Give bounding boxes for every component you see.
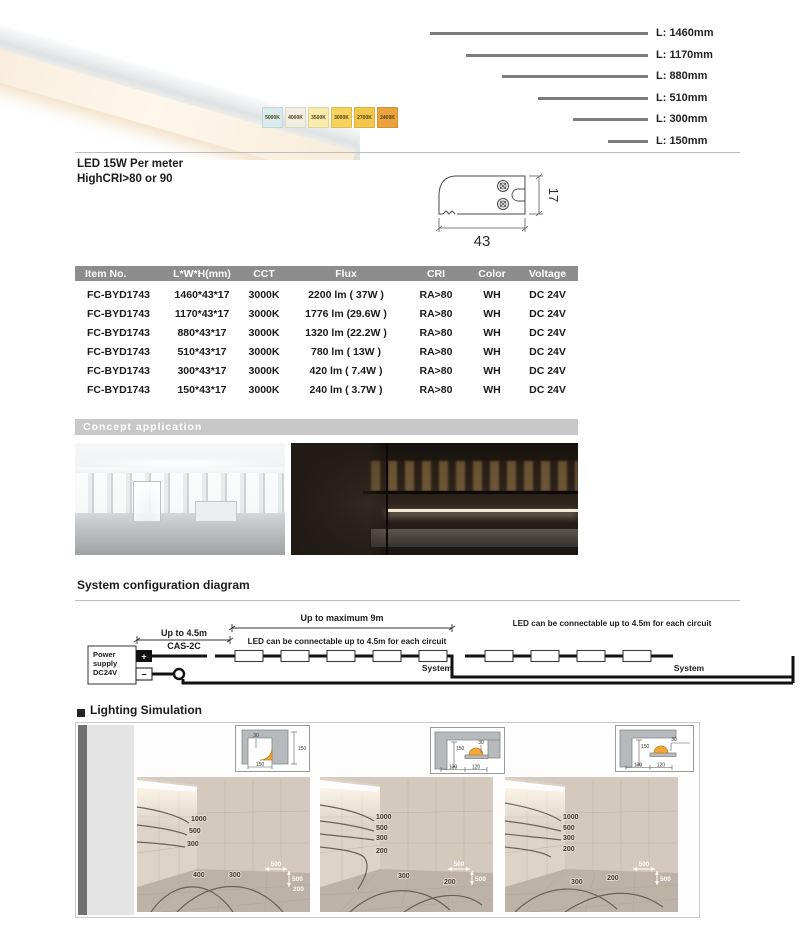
svg-text:200: 200 xyxy=(607,875,619,882)
cell-cri: RA>80 xyxy=(405,285,467,304)
cell-flux: 240 lm ( 3.7W ) xyxy=(287,380,405,399)
cell-flux: 2200 lm ( 37W ) xyxy=(287,285,405,304)
shelf-edge xyxy=(363,491,578,494)
length-row: L: 1460mm xyxy=(0,27,800,41)
cell-color: WH xyxy=(467,323,517,342)
ps-line3: DC24V xyxy=(93,668,117,677)
col-header: Flux xyxy=(287,266,405,281)
col-header: Item No. xyxy=(75,266,163,281)
length-label: L: 1460mm xyxy=(656,27,713,39)
divider-line xyxy=(75,152,740,153)
simulation-room-2: 1000 500 300 200 300 200 500 500 xyxy=(320,777,493,912)
lighting-simulation-title: Lighting Simulation xyxy=(90,703,202,717)
application-photo-kitchen xyxy=(291,443,578,555)
cove-detail-1-svg: 30 150 150 xyxy=(236,726,309,771)
cell-color: WH xyxy=(467,342,517,361)
svg-text:1000: 1000 xyxy=(191,816,207,823)
cell-voltage: DC 24V xyxy=(517,380,578,399)
cable-label: CAS-2C xyxy=(167,641,201,651)
table-row: FC-BYD1743 1460*43*17 3000K 2200 lm ( 37… xyxy=(75,285,578,304)
svg-text:300: 300 xyxy=(563,835,575,842)
col-header: L*W*H(mm) xyxy=(163,266,241,281)
svg-text:200: 200 xyxy=(444,879,456,886)
height-dim-label: 17 xyxy=(546,188,561,202)
store-floor xyxy=(75,521,285,555)
svg-text:500: 500 xyxy=(639,861,650,868)
profile-outline xyxy=(439,176,525,214)
svg-text:200: 200 xyxy=(293,886,304,893)
datasheet-page: 5000K 4000K 3500K 3000K 2700K 2400K L: 1… xyxy=(0,0,800,930)
cell-item: FC-BYD1743 xyxy=(75,380,163,399)
system-config-title: System configuration diagram xyxy=(77,578,250,592)
cell-voltage: DC 24V xyxy=(517,361,578,380)
cell-voltage: DC 24V xyxy=(517,304,578,323)
inset1-dim-150b: 150 xyxy=(256,762,265,768)
length-bar xyxy=(538,97,648,100)
kitchen-counter xyxy=(371,529,578,547)
under-cabinet-light xyxy=(386,509,578,512)
inset2-dim-150: 150 xyxy=(456,746,465,752)
panel-dark-strip xyxy=(78,725,87,915)
table-row: FC-BYD1743 150*43*17 3000K 240 lm ( 3.7W… xyxy=(75,380,578,399)
cell-cri: RA>80 xyxy=(405,342,467,361)
plus-label: + xyxy=(141,652,146,662)
minus-label: − xyxy=(141,670,146,680)
cell-item: FC-BYD1743 xyxy=(75,342,163,361)
table-row: FC-BYD1743 880*43*17 3000K 1320 lm (22.2… xyxy=(75,323,578,342)
cell-size: 150*43*17 xyxy=(163,380,241,399)
cove-detail-1: 30 150 150 xyxy=(235,725,310,772)
circuit2-label: LED can be connectable up to 4.5m for ea… xyxy=(513,619,712,628)
svg-text:500: 500 xyxy=(660,876,671,883)
cell-flux: 1320 lm (22.2W ) xyxy=(287,323,405,342)
table-header-row: Item No. L*W*H(mm) CCT Flux CRI Color Vo… xyxy=(75,266,578,281)
cell-cri: RA>80 xyxy=(405,361,467,380)
bottle-shelf xyxy=(371,461,578,491)
system2-label: System xyxy=(674,663,705,673)
cove-glow-fade xyxy=(137,788,197,825)
inset3-dim-150: 150 xyxy=(641,744,650,750)
length-row: L: 300mm xyxy=(0,113,800,127)
inset2-dim-30: 30 xyxy=(478,740,484,746)
svg-text:300: 300 xyxy=(571,879,583,886)
col-header: CRI xyxy=(405,266,467,281)
cell-color: WH xyxy=(467,380,517,399)
inset1-dim-150r: 150 xyxy=(298,746,307,752)
svg-text:500: 500 xyxy=(475,876,486,883)
cell-flux: 780 lm ( 13W ) xyxy=(287,342,405,361)
length-bar xyxy=(430,32,648,35)
cell-cct: 3000K xyxy=(241,342,287,361)
cell-cct: 3000K xyxy=(241,304,287,323)
cell-cri: RA>80 xyxy=(405,380,467,399)
width-dim-label: 43 xyxy=(474,233,491,250)
col-header: Color xyxy=(467,266,517,281)
length-label: L: 300mm xyxy=(656,113,707,125)
table-row: FC-BYD1743 510*43*17 3000K 780 lm ( 13W … xyxy=(75,342,578,361)
table-row: FC-BYD1743 300*43*17 3000K 420 lm ( 7.4W… xyxy=(75,361,578,380)
sliding-door xyxy=(291,443,388,555)
cell-flux: 1776 lm (29.6W ) xyxy=(287,304,405,323)
svg-text:300: 300 xyxy=(398,873,410,880)
cell-flux: 420 lm ( 7.4W ) xyxy=(287,361,405,380)
cell-item: FC-BYD1743 xyxy=(75,304,163,323)
inset2-dim-130: 130 xyxy=(449,765,458,771)
table-row: FC-BYD1743 1170*43*17 3000K 1776 lm (29.… xyxy=(75,304,578,323)
cri-spec: HighCRI>80 or 90 xyxy=(77,172,183,187)
cove-glow-fade xyxy=(505,788,565,825)
panel-light-strip xyxy=(87,725,134,915)
inset3-dim-120: 120 xyxy=(657,763,666,769)
cell-voltage: DC 24V xyxy=(517,342,578,361)
section-bullet xyxy=(77,709,85,717)
length-label: L: 510mm xyxy=(656,92,707,104)
svg-text:400: 400 xyxy=(193,872,205,879)
inset3-dim-130: 130 xyxy=(634,763,643,769)
concept-application-banner: Concept application xyxy=(75,419,578,435)
cross-section-diagram: 17 43 xyxy=(425,170,575,260)
cell-voltage: DC 24V xyxy=(517,285,578,304)
dim-9m-label: Up to maximum 9m xyxy=(300,613,383,623)
cell-cct: 3000K xyxy=(241,361,287,380)
led-modules xyxy=(235,651,651,662)
cell-size: 510*43*17 xyxy=(163,342,241,361)
simulation-room-1: 1000 500 300 400 300 500 500 200 xyxy=(137,777,310,912)
svg-text:500: 500 xyxy=(454,861,465,868)
wire-loop xyxy=(174,669,184,679)
length-bar xyxy=(466,54,648,57)
length-bar xyxy=(608,140,648,143)
cell-size: 300*43*17 xyxy=(163,361,241,380)
length-row: L: 150mm xyxy=(0,135,800,149)
svg-text:200: 200 xyxy=(563,846,575,853)
dim-9m-lines xyxy=(229,624,455,632)
circuit1-label: LED can be connectable up to 4.5m for ea… xyxy=(248,637,447,646)
svg-text:300: 300 xyxy=(229,872,241,879)
cell-cct: 3000K xyxy=(241,285,287,304)
cell-item: FC-BYD1743 xyxy=(75,323,163,342)
svg-text:1000: 1000 xyxy=(376,814,392,821)
svg-text:500: 500 xyxy=(563,825,575,832)
simulation-room-3: 1000 500 300 200 300 200 500 500 xyxy=(505,777,678,912)
cell-color: WH xyxy=(467,304,517,323)
cell-voltage: DC 24V xyxy=(517,323,578,342)
display-shelves xyxy=(75,473,285,513)
inset1-dim-30: 30 xyxy=(253,733,259,739)
length-row: L: 510mm xyxy=(0,92,800,106)
svg-text:500: 500 xyxy=(376,825,388,832)
length-label: L: 150mm xyxy=(656,135,707,147)
system1-label: System xyxy=(422,663,453,673)
cell-cri: RA>80 xyxy=(405,304,467,323)
ps-line1: Power xyxy=(93,650,116,659)
dim-45-label: Up to 4.5m xyxy=(161,628,207,638)
application-photo-store xyxy=(75,443,285,555)
cove-detail-3: 150 30 130 120 xyxy=(615,725,694,772)
svg-text:500: 500 xyxy=(292,876,303,883)
cell-cct: 3000K xyxy=(241,380,287,399)
col-header: CCT xyxy=(241,266,287,281)
svg-text:1000: 1000 xyxy=(563,814,579,821)
cell-size: 1170*43*17 xyxy=(163,304,241,323)
length-row: L: 1170mm xyxy=(0,49,800,63)
cell-size: 1460*43*17 xyxy=(163,285,241,304)
inset3-dim-30: 30 xyxy=(671,737,677,743)
spec-table: Item No. L*W*H(mm) CCT Flux CRI Color Vo… xyxy=(75,266,578,399)
inset2-dim-120: 120 xyxy=(472,765,481,771)
length-label: L: 880mm xyxy=(656,70,707,82)
power-spec: LED 15W Per meter xyxy=(77,157,183,172)
cove-detail-2: 150 30 130 120 xyxy=(430,727,505,774)
svg-text:300: 300 xyxy=(187,841,199,848)
cell-item: FC-BYD1743 xyxy=(75,361,163,380)
system-config-diagram: Up to maximum 9m Up to 4.5m CAS-2C LED c… xyxy=(85,610,800,698)
length-row: L: 880mm xyxy=(0,70,800,84)
length-label: L: 1170mm xyxy=(656,49,713,61)
cell-cri: RA>80 xyxy=(405,323,467,342)
cell-color: WH xyxy=(467,285,517,304)
cove-detail-2-svg: 150 30 130 120 xyxy=(431,728,504,773)
cell-cct: 3000K xyxy=(241,323,287,342)
spec-text: LED 15W Per meter HighCRI>80 or 90 xyxy=(77,157,183,187)
ps-line2: supply xyxy=(93,659,118,668)
cove-detail-3-svg: 150 30 130 120 xyxy=(616,726,693,771)
cell-item: FC-BYD1743 xyxy=(75,285,163,304)
cove-light xyxy=(75,459,285,467)
svg-text:500: 500 xyxy=(271,861,282,868)
divider-line xyxy=(75,600,740,601)
col-header: Voltage xyxy=(517,266,578,281)
cell-color: WH xyxy=(467,361,517,380)
dimension-lines xyxy=(436,174,543,232)
svg-text:200: 200 xyxy=(376,848,388,855)
cell-size: 880*43*17 xyxy=(163,323,241,342)
svg-text:300: 300 xyxy=(376,835,388,842)
svg-text:500: 500 xyxy=(189,828,201,835)
length-bar xyxy=(502,75,648,78)
length-bar xyxy=(573,118,648,121)
